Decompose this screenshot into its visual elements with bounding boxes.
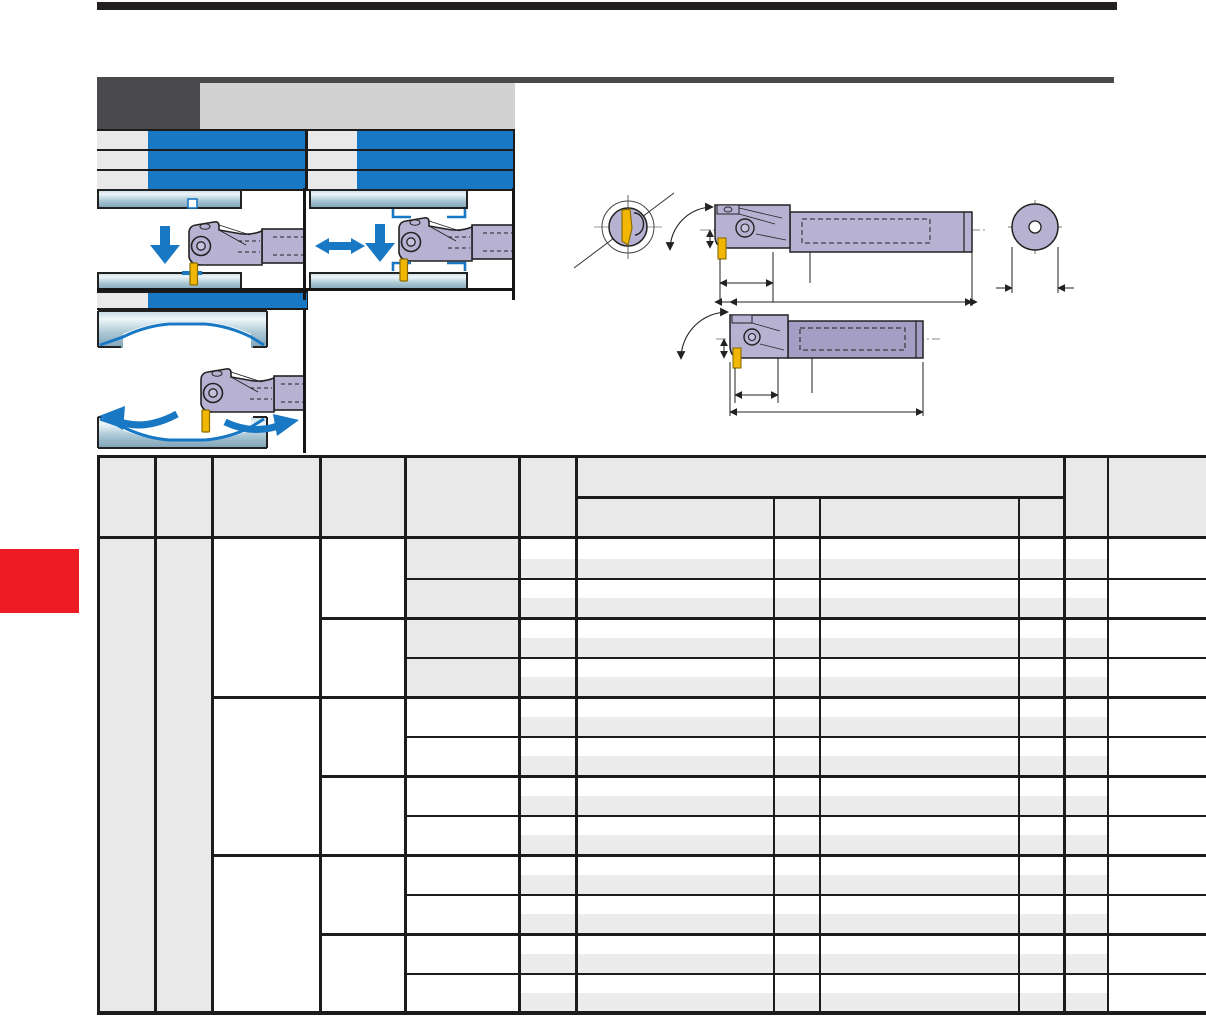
feature-row-label-cell xyxy=(97,131,148,149)
boring-bar-side-view-2 xyxy=(681,302,977,416)
table-group-line xyxy=(212,696,1206,699)
feature-row-label-cell xyxy=(308,171,357,189)
table-subcolumn-line xyxy=(773,497,775,1013)
grooving-tool-head xyxy=(399,218,472,281)
table-column-line xyxy=(1063,455,1066,1013)
table-column-line xyxy=(97,455,100,1013)
table-pair-line xyxy=(405,578,1206,580)
section-header-strip xyxy=(200,83,515,129)
table-bottom-border xyxy=(97,1011,1206,1015)
left-right-arrow-icon xyxy=(315,238,365,254)
groove-notch xyxy=(188,199,197,208)
feature-row-bar xyxy=(148,131,305,149)
diagram-face-grooving xyxy=(98,188,306,300)
page-edge-tab xyxy=(0,549,79,613)
table-column-line-thin xyxy=(1107,455,1109,1013)
feature-row-label-cell xyxy=(97,171,148,189)
generated-layer xyxy=(0,0,1206,1016)
page-top-rule xyxy=(97,2,1117,10)
workpiece-bottom-wall xyxy=(310,273,467,290)
tool-shank xyxy=(472,225,515,259)
table-group-line xyxy=(320,775,1206,778)
table-group-line xyxy=(320,617,1206,620)
workpiece-top-wall xyxy=(98,190,241,208)
bar-shank xyxy=(788,321,923,358)
catalog-page xyxy=(0,0,1206,1016)
feature-row-bar xyxy=(148,171,305,189)
down-arrow-icon xyxy=(150,226,180,264)
table-top-border xyxy=(97,455,1206,458)
workpiece-top-wall xyxy=(310,190,467,208)
table-col1-merged-cell xyxy=(97,537,155,1013)
table-column-line xyxy=(211,455,214,1013)
tool-shank xyxy=(262,229,305,263)
dimension-drawings xyxy=(560,190,1120,435)
diagram-traverse-grooving xyxy=(310,188,515,300)
feature-row-bar xyxy=(357,131,513,149)
table-column-line xyxy=(319,455,322,1013)
down-arrow-icon xyxy=(365,224,395,262)
feature-row-bar xyxy=(357,151,513,169)
table-column-line xyxy=(154,455,157,1013)
table-column-line xyxy=(518,455,521,1013)
table-col2-merged-cell xyxy=(155,537,212,1013)
application-diagrams xyxy=(97,188,515,455)
section-header-box xyxy=(97,77,200,129)
table-group-line xyxy=(320,933,1206,936)
workpiece-bottom-wall xyxy=(98,273,241,290)
bar-shank xyxy=(790,212,972,252)
end-view-with-insert xyxy=(574,193,674,268)
feature-row-bar xyxy=(148,151,305,169)
boring-bar-side-view-1 xyxy=(670,205,988,306)
table-pair-line xyxy=(405,657,1206,659)
tool-shank xyxy=(274,376,305,410)
insert-side-view xyxy=(733,348,741,368)
table-group-line xyxy=(212,854,1206,857)
insert-side-view xyxy=(718,238,726,259)
table-subcolumn-line xyxy=(1018,497,1020,1013)
shank-end-view xyxy=(996,200,1074,293)
diagram-profile-recessing xyxy=(98,310,306,453)
feature-row-bar xyxy=(357,171,513,189)
feature-row-label-cell xyxy=(97,151,148,169)
table-column-line xyxy=(404,455,407,1013)
groove-width-bracket-top xyxy=(393,209,465,217)
table-pair-line xyxy=(405,815,1206,817)
feature-row-label-cell xyxy=(308,131,357,149)
table-column-line xyxy=(575,455,578,1013)
feature-row-label-cell xyxy=(308,151,357,169)
table-pair-line xyxy=(405,894,1206,896)
table-header-bottom-border xyxy=(97,536,1206,539)
table-pair-line xyxy=(405,736,1206,738)
table-pair-line xyxy=(405,973,1206,975)
table-subcolumn-line xyxy=(819,497,821,1013)
